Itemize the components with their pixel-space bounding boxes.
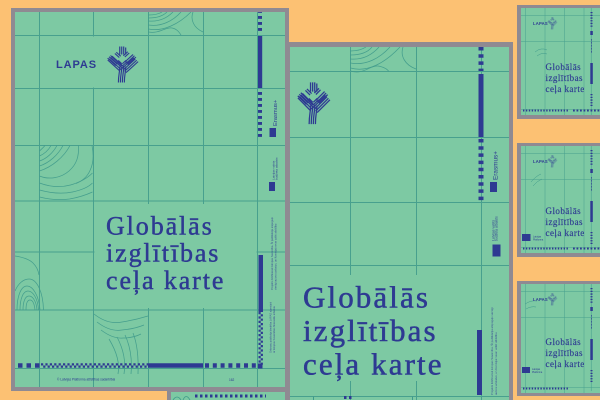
svg-text:Projekts līdzfinansē Eiropas S: Projekts līdzfinansē Eiropas Savienība. … — [269, 216, 274, 290]
svg-text:© Latvijas Platforma attīstība: © Latvijas Platforma attīstības sadarbīb… — [57, 378, 115, 382]
svg-text:Globālās: Globālās — [106, 212, 214, 241]
svg-text:Erasmus+: Erasmus+ — [493, 151, 500, 180]
svg-text:LAPAS: LAPAS — [56, 59, 97, 71]
svg-text:Globālās: Globālās — [546, 337, 582, 347]
svg-text:162: 162 — [229, 378, 235, 382]
svg-text:Platforma: Platforma — [532, 371, 543, 374]
svg-text:ceļa karte: ceļa karte — [546, 84, 585, 95]
svg-text:Globālās: Globālās — [546, 206, 582, 216]
svg-text:ceļa karte: ceļa karte — [546, 359, 585, 370]
svg-text:ceļa karte: ceļa karte — [106, 266, 225, 295]
svg-text:vienīgi autora uzskatus, un Ko: vienīgi autora uzskatus, un Komisijai ne… — [274, 223, 278, 290]
svg-text:autora uzskatus, un Komisijai: autora uzskatus, un Komisijai nevar uzli… — [494, 332, 498, 395]
svg-text:LAPAS: LAPAS — [533, 21, 548, 26]
svg-text:Platforma: Platforma — [533, 239, 544, 242]
svg-text:Erasmus+: Erasmus+ — [273, 99, 279, 126]
svg-text:ceļa karte: ceļa karte — [546, 228, 585, 239]
svg-text:Globālās: Globālās — [303, 280, 430, 315]
svg-text:LAPAS: LAPAS — [533, 159, 548, 164]
svg-text:budžeta atbalsts: budžeta atbalsts — [495, 216, 499, 241]
svg-text:izglītības: izglītības — [106, 239, 220, 268]
svg-text:ar Eiropas Savienības finansiā: ar Eiropas Savienības finansiālu atbalst… — [272, 306, 276, 353]
svg-text:LAPAS: LAPAS — [533, 297, 548, 302]
svg-text:izglītības: izglītības — [546, 217, 584, 227]
svg-text:Globālās: Globālās — [546, 62, 582, 72]
svg-text:Grāmatu publicēja biedrība LAP: Grāmatu publicēja biedrība LAPAS aģentūr… — [268, 301, 273, 353]
svg-text:budžeta atbalsts: budžeta atbalsts — [275, 157, 279, 180]
svg-text:izglītības: izglītības — [546, 348, 584, 358]
svg-text:ceļa karte: ceļa karte — [303, 347, 444, 382]
svg-text:izglītības: izglītības — [546, 73, 584, 83]
svg-text:izglītības: izglītības — [303, 313, 438, 348]
